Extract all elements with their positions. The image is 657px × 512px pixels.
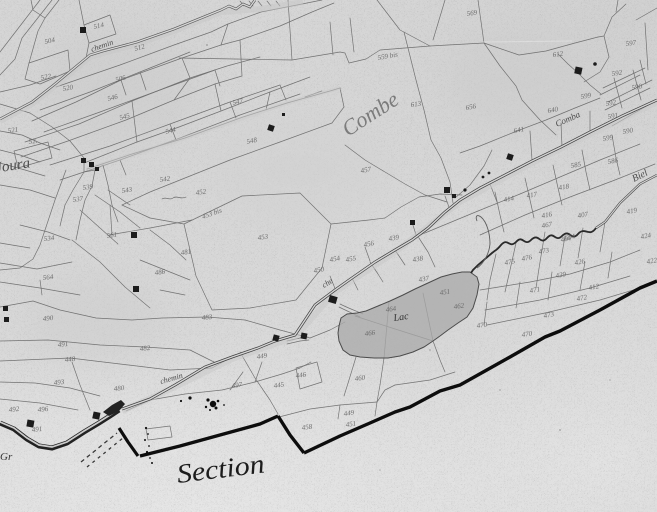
svg-text:569: 569	[466, 9, 478, 18]
svg-text:448: 448	[64, 355, 76, 364]
svg-text:462: 462	[453, 302, 465, 311]
svg-text:491: 491	[31, 425, 42, 434]
svg-text:480: 480	[113, 384, 125, 393]
svg-text:449: 449	[343, 409, 355, 418]
svg-text:539: 539	[82, 183, 94, 192]
svg-text:452: 452	[195, 188, 207, 197]
svg-text:52.: 52.	[28, 137, 38, 146]
svg-text:493: 493	[53, 378, 65, 387]
svg-text:534: 534	[43, 234, 55, 243]
svg-text:422: 422	[646, 256, 657, 266]
svg-text:466: 466	[364, 329, 376, 338]
svg-text:470: 470	[521, 330, 533, 339]
svg-text:483: 483	[201, 313, 213, 322]
svg-text:491: 491	[57, 340, 68, 349]
svg-text:497: 497	[231, 381, 243, 390]
svg-text:592: 592	[611, 69, 623, 78]
svg-text:481: 481	[180, 248, 192, 257]
svg-text:460: 460	[354, 374, 366, 383]
svg-text:613: 613	[410, 100, 422, 109]
svg-text:445: 445	[273, 381, 285, 390]
svg-text:451: 451	[345, 420, 357, 429]
svg-text:Gr: Gr	[0, 451, 13, 463]
svg-text:446: 446	[295, 371, 307, 380]
svg-text:486: 486	[154, 268, 166, 277]
svg-text:458: 458	[301, 423, 313, 432]
svg-text:449: 449	[256, 352, 268, 361]
svg-text:496: 496	[37, 405, 49, 414]
svg-text:451: 451	[439, 288, 451, 297]
svg-text:521: 521	[7, 126, 19, 135]
svg-text:490: 490	[42, 314, 54, 323]
svg-text:542: 542	[159, 175, 171, 184]
svg-text:597: 597	[625, 39, 637, 48]
svg-text:464: 464	[385, 305, 397, 314]
svg-text:492: 492	[8, 405, 20, 414]
svg-text:564: 564	[42, 273, 54, 282]
svg-text:453: 453	[257, 233, 269, 242]
svg-text:543: 543	[121, 186, 133, 195]
svg-text:470: 470	[476, 321, 488, 330]
svg-text:537: 537	[72, 195, 84, 204]
svg-text:612: 612	[552, 50, 564, 59]
svg-text:482: 482	[139, 344, 151, 353]
svg-text:Lac: Lac	[392, 311, 410, 324]
svg-text:561: 561	[106, 231, 118, 240]
